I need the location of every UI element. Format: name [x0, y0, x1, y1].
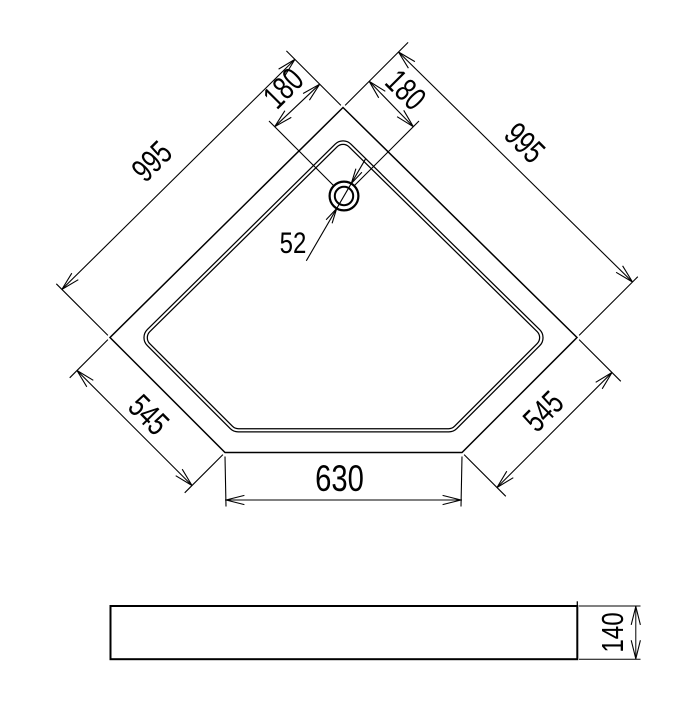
svg-text:180: 180: [378, 63, 433, 118]
svg-text:52: 52: [280, 225, 307, 259]
svg-text:545: 545: [121, 388, 176, 443]
svg-text:180: 180: [257, 62, 312, 117]
svg-text:630: 630: [315, 459, 364, 500]
svg-text:140: 140: [595, 612, 630, 652]
svg-text:545: 545: [517, 385, 572, 440]
svg-text:995: 995: [497, 116, 552, 171]
